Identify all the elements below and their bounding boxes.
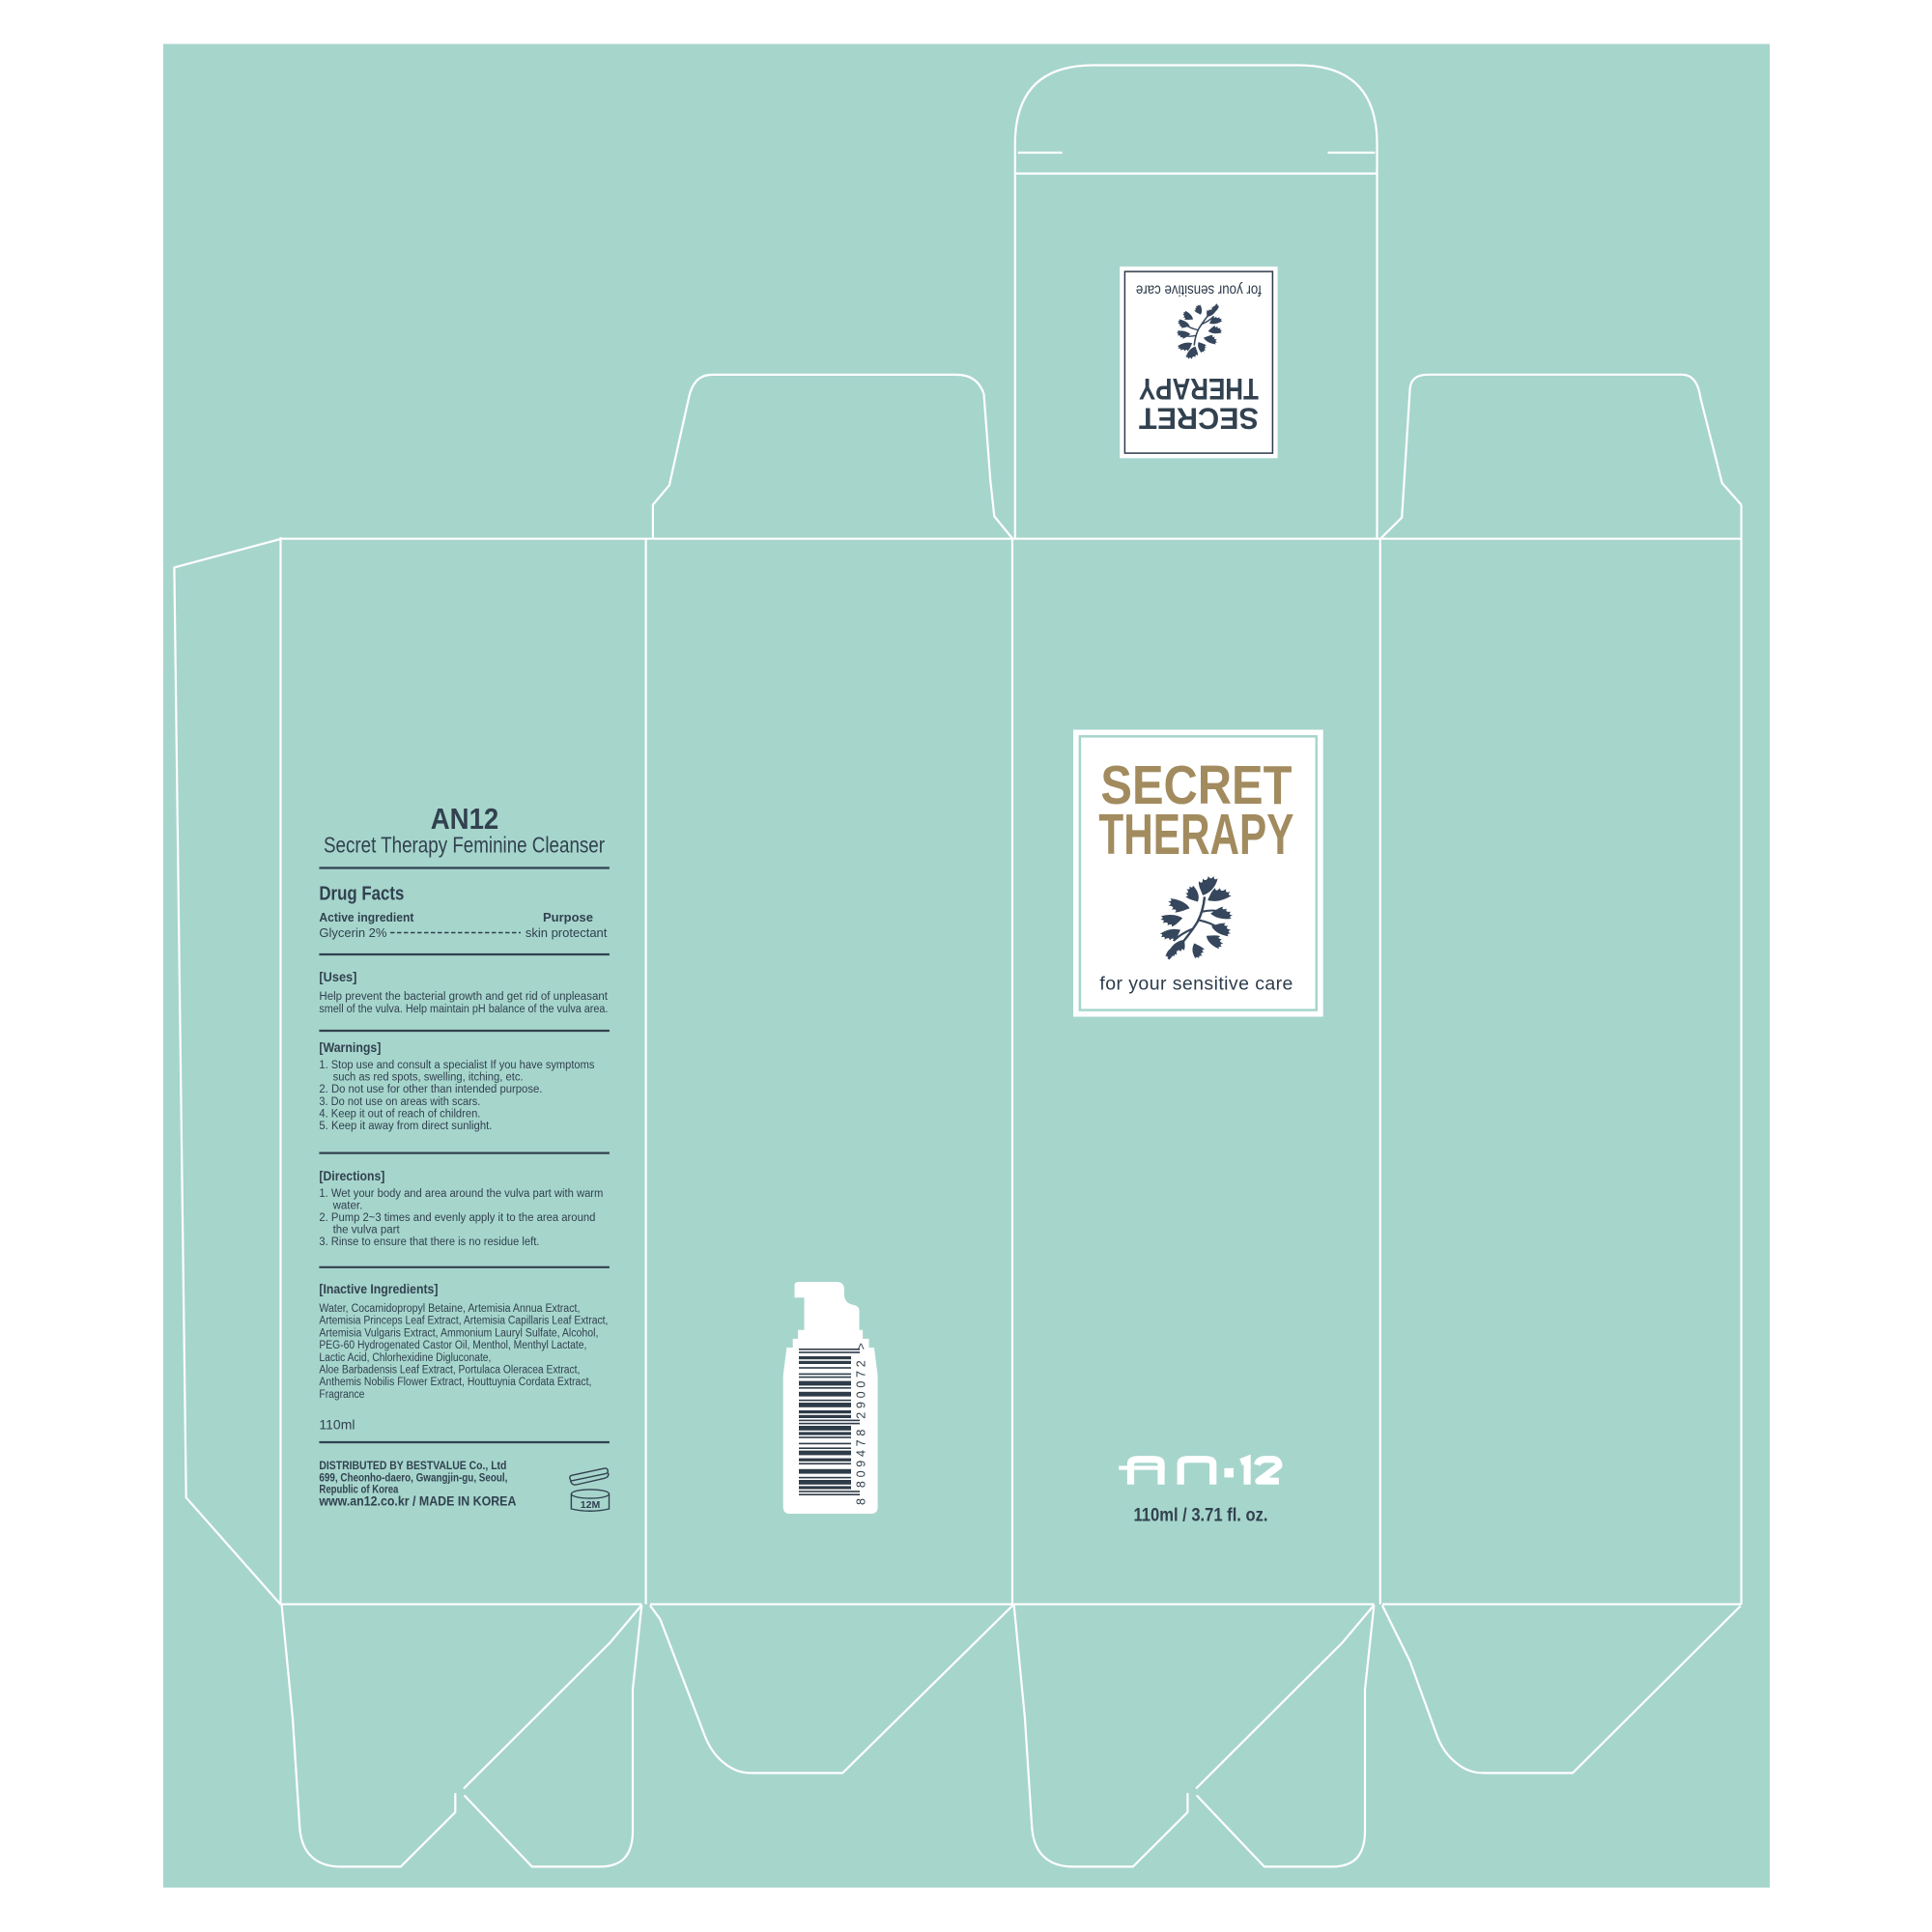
svg-text:110ml: 110ml [319,1417,355,1433]
svg-text:Drug Facts: Drug Facts [319,884,404,905]
svg-text:5. Keep it away from direct su: 5. Keep it away from direct sunlight. [319,1121,492,1132]
svg-text:Anthemis Nobilis Flower Extrac: Anthemis Nobilis Flower Extract, Houttuy… [319,1377,591,1388]
svg-text:www.an12.co.kr / MADE IN KOREA: www.an12.co.kr / MADE IN KOREA [319,1493,517,1509]
svg-text:Secret Therapy Feminine Cleans: Secret Therapy Feminine Cleanser [324,833,605,858]
svg-text:Artemisia Vulgaris Extract, Am: Artemisia Vulgaris Extract, Ammonium Lau… [319,1327,598,1339]
svg-text:[Uses]: [Uses] [319,969,356,984]
svg-text:1. Wet your body and area arou: 1. Wet your body and area around the vul… [319,1188,603,1200]
svg-text:Help prevent the bacterial gro: Help prevent the bacterial growth and ge… [319,991,608,1003]
svg-text:for your sensitive care: for your sensitive care [1136,282,1262,298]
svg-text:PEG-60 Hydrogenated Castor Oil: PEG-60 Hydrogenated Castor Oil, Menthol,… [319,1340,586,1351]
svg-text:Fragrance: Fragrance [319,1389,364,1401]
svg-text:THERAPY: THERAPY [1098,803,1293,867]
svg-text:Water, Cocamidopropyl Betaine,: Water, Cocamidopropyl Betaine, Artemisia… [319,1303,580,1315]
svg-text:AN12: AN12 [431,802,499,836]
svg-text:Artemisia Princeps Leaf Extrac: Artemisia Princeps Leaf Extract, Artemis… [319,1316,608,1327]
svg-text:[Warnings]: [Warnings] [319,1039,381,1055]
svg-text:THERAPY: THERAPY [1139,372,1259,407]
svg-text:3. Do not use on areas with sc: 3. Do not use on areas with scars. [319,1096,480,1108]
svg-text:3. Rinse to ensure that there: 3. Rinse to ensure that there is no resi… [319,1236,539,1248]
svg-text:[Inactive Ingredients]: [Inactive Ingredients] [319,1281,438,1296]
svg-text:the vulva part: the vulva part [333,1225,401,1236]
svg-text:4. Keep it out of reach of chi: 4. Keep it out of reach of children. [319,1108,480,1120]
svg-text:skin protectant: skin protectant [526,925,608,940]
svg-text:Purpose: Purpose [543,910,593,924]
svg-text:such as red spots, swelling, i: such as red spots, swelling, itching, et… [333,1072,524,1084]
svg-text:2. Pump 2~3 times and evenly a: 2. Pump 2~3 times and evenly apply it to… [319,1212,595,1224]
svg-text:Aloe Barbadensis Leaf Extract,: Aloe Barbadensis Leaf Extract, Portulaca… [319,1365,580,1377]
svg-text:12M: 12M [581,1499,601,1511]
svg-text:110ml / 3.71 fl. oz.: 110ml / 3.71 fl. oz. [1134,1506,1268,1526]
svg-text:Active ingredient: Active ingredient [319,910,414,924]
svg-text:smell of the vulva. Help maint: smell of the vulva. Help maintain pH bal… [319,1004,608,1015]
svg-text:Lactic Acid, Chlorhexidine Dig: Lactic Acid, Chlorhexidine Digluconate, [319,1352,491,1364]
svg-text:for your sensitive care: for your sensitive care [1099,974,1293,995]
svg-text:Glycerin 2%: Glycerin 2% [319,925,387,940]
svg-text:water.: water. [332,1201,363,1212]
svg-text:1. Stop use and consult a spec: 1. Stop use and consult a specialist If … [319,1060,594,1071]
svg-text:2. Do not use for other than i: 2. Do not use for other than intended pu… [319,1084,542,1095]
svg-text:[Directions]: [Directions] [319,1168,384,1183]
